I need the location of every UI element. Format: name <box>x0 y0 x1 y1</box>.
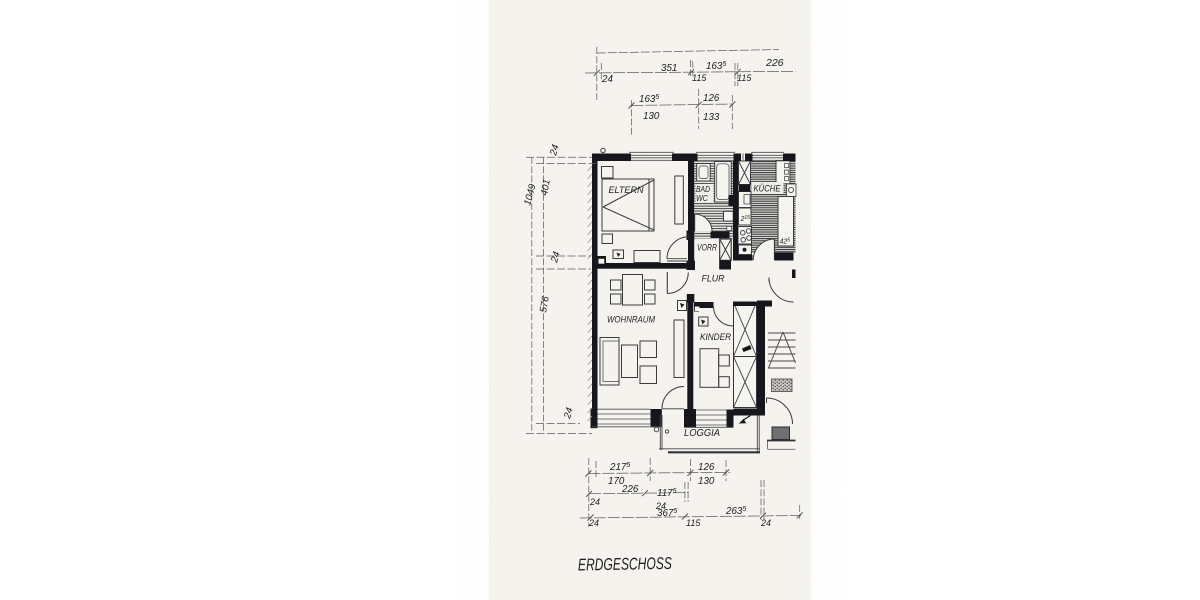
svg-text:WOHNRAUM: WOHNRAUM <box>607 315 655 326</box>
svg-text:24: 24 <box>589 497 600 507</box>
svg-text:24: 24 <box>601 74 613 85</box>
svg-text:FLUR: FLUR <box>702 274 725 285</box>
svg-text:ELTERN: ELTERN <box>609 185 644 196</box>
svg-text:351: 351 <box>661 63 677 74</box>
svg-text:126: 126 <box>703 93 720 104</box>
svg-text:133: 133 <box>703 112 720 123</box>
svg-text:115: 115 <box>737 73 752 83</box>
svg-text:24: 24 <box>760 518 771 528</box>
svg-text:KÜCHE: KÜCHE <box>754 184 782 194</box>
svg-text:226: 226 <box>621 484 639 495</box>
svg-text:ERDGESCHOSS: ERDGESCHOSS <box>578 554 673 575</box>
svg-text:24: 24 <box>588 518 599 528</box>
svg-text:LOGGIA: LOGGIA <box>684 427 720 439</box>
svg-text:226: 226 <box>765 57 784 69</box>
svg-text:130: 130 <box>698 476 715 487</box>
svg-text:KINDER: KINDER <box>700 332 731 343</box>
svg-text:126: 126 <box>698 462 715 473</box>
svg-text:115: 115 <box>686 518 701 528</box>
svg-text:VORR: VORR <box>697 243 717 253</box>
svg-text:115: 115 <box>692 73 707 83</box>
svg-text:130: 130 <box>643 111 660 122</box>
svg-text:WC: WC <box>696 193 709 203</box>
